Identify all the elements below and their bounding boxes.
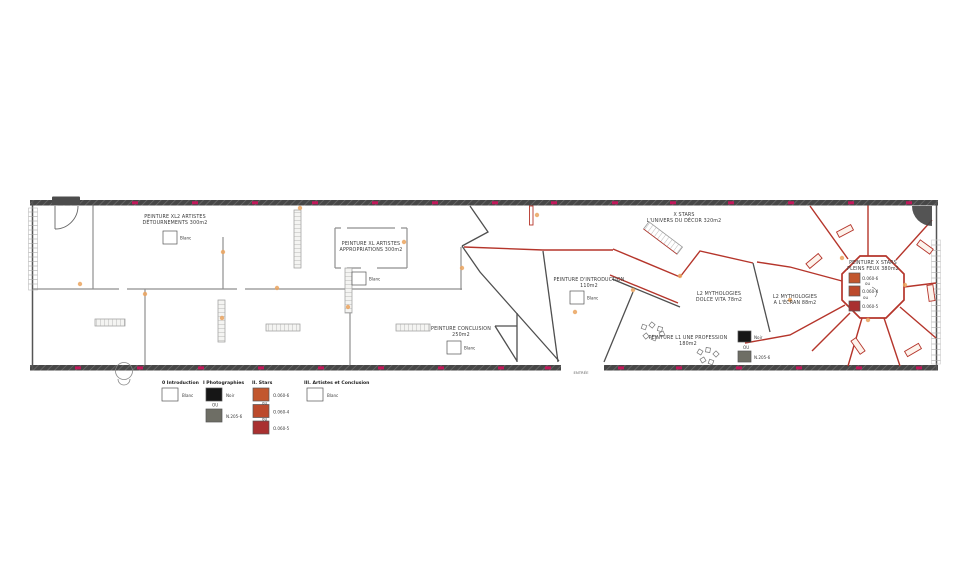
entrance-label: ENTRÉE (574, 370, 590, 375)
swatch-label: O.060-5 (862, 304, 879, 309)
starburst-walls (745, 206, 936, 367)
room-label-univers-decor: X STARS L'UNIVERS DU DÉCOR 320m2 (647, 212, 722, 224)
legend-swatch-label: Blanc (327, 393, 338, 398)
color-swatch-3 (849, 301, 860, 311)
room-label-a-lecran: L2 MYTHOLOGIES A L'ÉCRAN 88m2 (773, 294, 817, 306)
room-name: PEINTURE D'INTRODUCTION (553, 277, 624, 283)
room-label-detournements: PEINTURE XL2 ARTISTES DÉTOURNEMENTS 300m… (143, 214, 208, 244)
legend-col-stars: II. Stars O.060-6 ou O.060-4 ou O.060-5 (252, 380, 290, 434)
legend-swatch (206, 388, 222, 401)
room-label-conclusion: PEINTURE CONCLUSION 250m2 Blanc (431, 326, 491, 354)
color-swatch (447, 341, 461, 354)
legend-title: II. Stars (252, 380, 273, 386)
floor-plan-canvas: PEINTURE XL2 ARTISTES DÉTOURNEMENTS 300m… (0, 0, 969, 570)
legend-swatch (307, 388, 323, 401)
vitrines (95, 210, 682, 342)
legend-swatch-label: Noir (226, 393, 235, 398)
wall-tick-marks (72, 201, 922, 369)
room-name: L2 MYTHOLOGIES (697, 291, 741, 297)
legend-swatch (162, 388, 178, 401)
color-swatch-2 (849, 286, 860, 296)
swatch-label: Blanc (369, 277, 380, 282)
room-label-introduction: PEINTURE D'INTRODUCTION 110m2 Blanc (553, 277, 624, 304)
room-name: PEINTURE XL ARTISTES (342, 241, 400, 247)
swatch-separator: OU (743, 345, 749, 350)
color-swatch (352, 272, 366, 285)
door-swing-left-icon (52, 197, 80, 230)
swatch-label: Blanc (587, 296, 598, 301)
room-area: 180m2 (679, 341, 697, 347)
legend-title: III. Artistes et Conclusion (304, 380, 369, 386)
door-swing-right-icon (912, 206, 932, 226)
room-label-dolce-vita: L2 MYTHOLOGIES DOLCE VITA 78m2 (696, 291, 742, 303)
room-name: X STARS (673, 212, 694, 218)
color-swatch (570, 291, 584, 304)
legend-swatch-label: O.060-4 (273, 410, 290, 415)
room-area: DOLCE VITA 78m2 (696, 297, 742, 303)
swatch-separator: ou (865, 281, 871, 286)
color-swatch (163, 231, 177, 244)
room-name: PEINTURE L1 UNE PROFESSION (649, 335, 728, 341)
partition-walls-left (33, 206, 462, 366)
swatch-label: Noir (754, 335, 763, 340)
legend-title: 0 Introduction (162, 380, 199, 386)
legend: 0 Introduction Blanc I Photographies Noi… (162, 380, 369, 434)
legend-col-photographies: I Photographies Noir OU N.205-6 (203, 380, 244, 422)
legend-swatch (206, 409, 222, 422)
swatch-label: Blanc (180, 236, 191, 241)
color-swatch-gray (738, 351, 751, 362)
legend-title: I Photographies (203, 380, 244, 386)
room-name: L2 MYTHOLOGIES (773, 294, 817, 300)
room-area: 250m2 (452, 332, 470, 338)
room-name: PEINTURE CONCLUSION (431, 326, 491, 332)
room-area: PLEINS FEUX 380m2 (847, 266, 899, 272)
legend-swatch (253, 388, 269, 401)
legend-swatch-label: Blanc (182, 393, 193, 398)
swatch-separator: ou (863, 295, 869, 300)
swatch-label: Blanc (464, 346, 475, 351)
legend-swatch-label: N.205-6 (226, 414, 243, 419)
legend-swatch-label: O.060-6 (273, 393, 290, 398)
swatch-label: N.205-6 (754, 355, 771, 360)
legend-col-introduction: 0 Introduction Blanc (162, 380, 199, 401)
room-name: PEINTURE XL2 ARTISTES (144, 214, 206, 220)
legend-separator: OU (212, 403, 218, 408)
room-label-pleins-feux: PEINTURE X STARS PLEINS FEUX 380m2 O.060… (847, 260, 899, 311)
room-name: PEINTURE X STARS (849, 260, 897, 266)
room-label-profession: PEINTURE L1 UNE PROFESSION 180m2 Noir OU… (649, 331, 771, 362)
room-area: APPROPRIATIONS 300m2 (340, 247, 403, 253)
ramp (644, 222, 683, 254)
legend-swatch (253, 421, 269, 434)
color-swatch-noir (738, 331, 751, 342)
room-area: 110m2 (580, 283, 598, 289)
color-swatch-1 (849, 273, 860, 283)
floor-plan-drawing: PEINTURE XL2 ARTISTES DÉTOURNEMENTS 300m… (0, 0, 969, 570)
legend-col-artistes-conclusion: III. Artistes et Conclusion Blanc (304, 380, 369, 401)
legend-swatch-label: O.060-5 (273, 426, 290, 431)
